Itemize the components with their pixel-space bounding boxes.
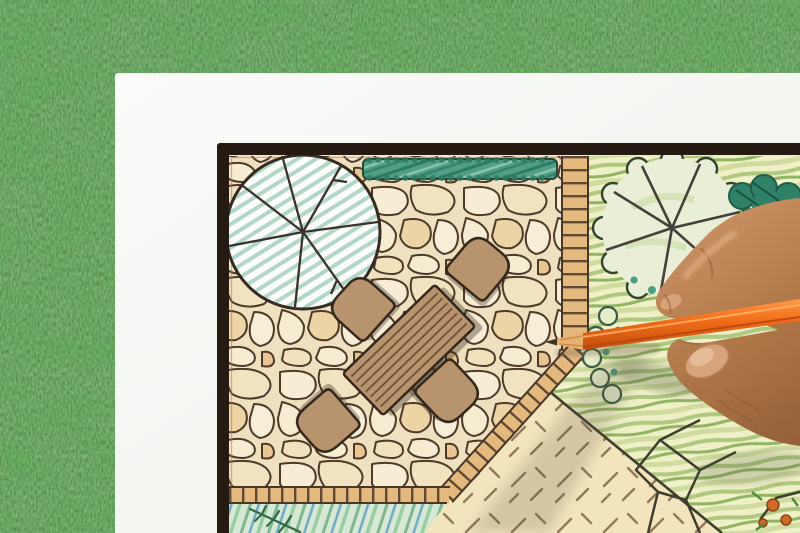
edging-band-right [562,156,588,350]
edging-band-bottom [229,487,450,503]
scene-photo [0,0,800,533]
planting-bed-strokes [229,503,447,533]
photo-stage [0,0,800,533]
hedge-row [363,159,557,179]
